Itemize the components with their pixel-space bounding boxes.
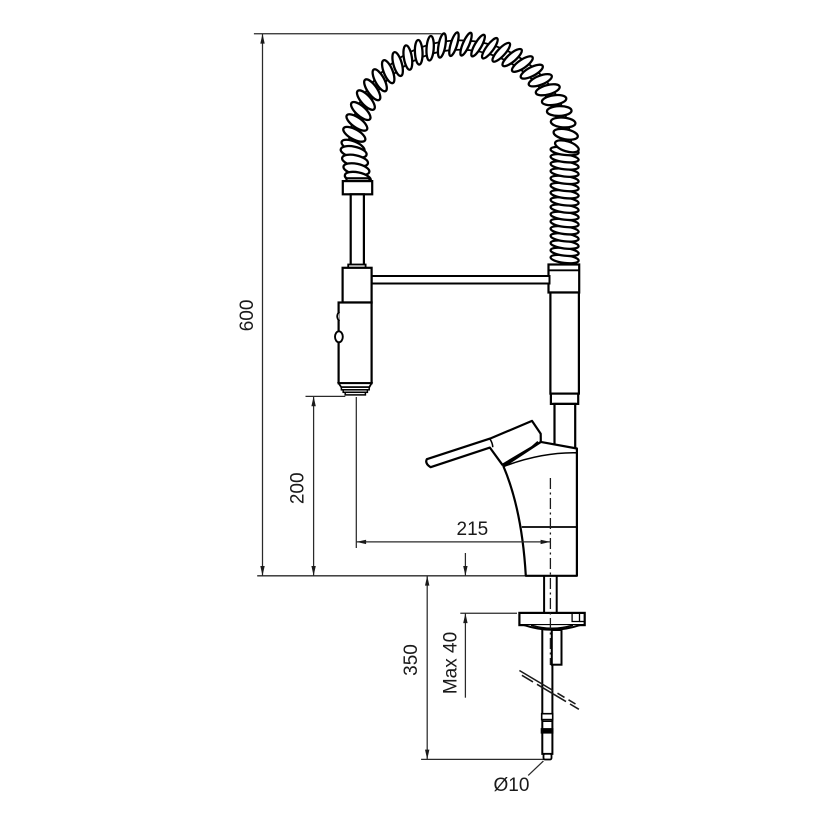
svg-text:600: 600 xyxy=(237,300,258,332)
svg-text:Ø10: Ø10 xyxy=(494,775,530,796)
svg-text:350: 350 xyxy=(401,644,422,676)
svg-text:Max 40: Max 40 xyxy=(441,632,462,694)
svg-text:200: 200 xyxy=(288,472,309,504)
svg-text:215: 215 xyxy=(457,519,489,540)
